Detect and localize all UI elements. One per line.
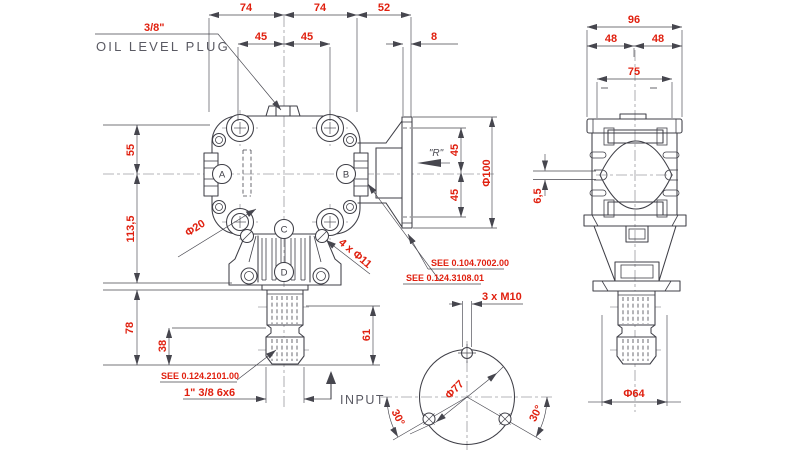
- note-see-flange: SEE 0.104.7002.00: [431, 258, 509, 268]
- port-c-label: C: [281, 225, 288, 236]
- dim-75: 75: [628, 66, 640, 78]
- labels: 3/8" OIL LEVEL PLUG 74 74 52 45 45 8 55 …: [96, 2, 664, 400]
- dim-spline-spec: 1" 3/8 6x6: [184, 387, 235, 399]
- dim-45-flange-lower: 45: [449, 189, 461, 201]
- dim-angle-right: 30°: [527, 404, 545, 424]
- dim-61: 61: [361, 329, 373, 341]
- dim-74-left: 74: [240, 2, 253, 14]
- dim-38: 38: [157, 340, 169, 352]
- dim-52: 52: [378, 2, 390, 14]
- port-b-label: B: [343, 170, 349, 181]
- dim-96: 96: [628, 14, 640, 26]
- drawing-page: A B C D "R": [0, 0, 800, 450]
- note-see-bearing: SEE 0.124.3108.01: [406, 273, 484, 283]
- dim-3xm10: 3 x M10: [482, 291, 522, 303]
- input-arrow-icon: [326, 371, 336, 384]
- dim-6-5: 6,5: [532, 188, 544, 203]
- extension-lines: [103, 17, 682, 406]
- dim-45-top-left: 45: [255, 31, 267, 43]
- dim-phi64: Φ64: [623, 388, 645, 400]
- note-see-shaft: SEE 0.124.2101.00: [161, 371, 239, 381]
- dim-113-5: 113,5: [125, 216, 137, 243]
- front-view-flange: "R": [358, 117, 450, 228]
- dim-78: 78: [124, 322, 136, 334]
- dim-48-right: 48: [652, 33, 664, 45]
- dim-55: 55: [125, 144, 137, 156]
- rotation-arrow-icon: [417, 159, 441, 167]
- front-view-housing: A B C D: [204, 106, 368, 285]
- dim-45-flange-upper: 45: [449, 144, 461, 156]
- input-label: INPUT: [340, 393, 385, 407]
- dim-74-right: 74: [314, 2, 327, 14]
- dim-angle-left: 30°: [389, 408, 407, 428]
- dim-phi77: Φ77: [443, 378, 467, 402]
- rotation-label: "R": [429, 148, 444, 159]
- dim-phi100: Φ100: [481, 159, 493, 186]
- port-a-label: A: [219, 170, 226, 181]
- oil-level-plug-label: OIL LEVEL PLUG: [96, 39, 230, 54]
- dim-45-top-right: 45: [301, 31, 313, 43]
- dim-oil-plug-size: 3/8": [144, 22, 165, 34]
- technical-drawing-canvas: A B C D "R": [0, 0, 800, 450]
- side-view: [584, 88, 686, 364]
- dim-4xphi11: 4 x Φ11: [336, 237, 374, 271]
- front-view-input-shaft: INPUT: [262, 285, 385, 407]
- dim-48-left: 48: [605, 33, 617, 45]
- dim-8: 8: [431, 31, 437, 43]
- dim-phi20: Φ20: [183, 218, 207, 240]
- port-d-label: D: [281, 268, 288, 279]
